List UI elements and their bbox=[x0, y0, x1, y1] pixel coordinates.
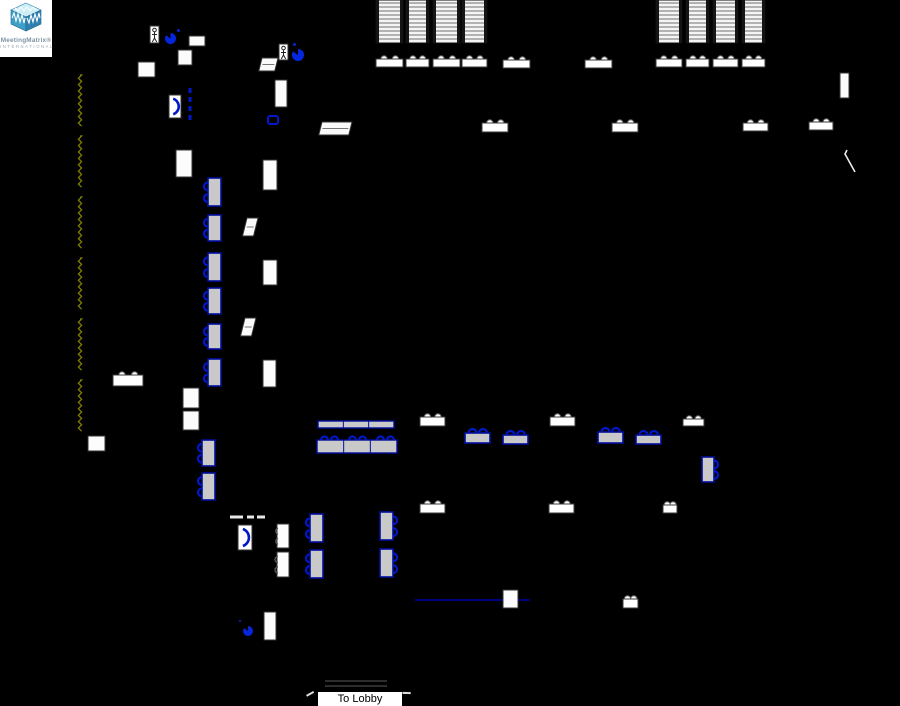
banquet-table[interactable] bbox=[380, 549, 397, 577]
banquet-table[interactable] bbox=[204, 253, 221, 281]
classroom-table[interactable] bbox=[420, 414, 445, 426]
classroom-table[interactable] bbox=[462, 56, 487, 67]
classroom-table[interactable] bbox=[433, 56, 460, 67]
classroom-table[interactable] bbox=[612, 120, 638, 132]
banquet-table[interactable] bbox=[306, 550, 323, 578]
furniture-block[interactable] bbox=[263, 160, 277, 190]
banquet-table[interactable] bbox=[465, 429, 490, 443]
classroom-table[interactable] bbox=[686, 56, 709, 67]
furniture-block[interactable] bbox=[264, 612, 276, 640]
theater-rows[interactable] bbox=[433, 0, 460, 43]
classroom-table[interactable] bbox=[503, 57, 530, 68]
meetingmatrix-logo: MeetingMatrix® INTERNATIONAL bbox=[0, 0, 52, 57]
pie-marker-icon[interactable] bbox=[243, 626, 253, 636]
floorplan-stage: MeetingMatrix® INTERNATIONAL To Lobby bbox=[0, 0, 900, 706]
furniture-block[interactable] bbox=[183, 388, 199, 408]
classroom-table[interactable] bbox=[656, 56, 682, 67]
equipment-marker[interactable] bbox=[268, 116, 278, 124]
furniture-block[interactable] bbox=[263, 260, 277, 285]
theater-rows[interactable] bbox=[462, 0, 487, 43]
theater-rows[interactable] bbox=[742, 0, 765, 43]
dot-marker bbox=[177, 29, 180, 32]
classroom-table[interactable] bbox=[585, 57, 612, 68]
dimension-tick bbox=[306, 692, 314, 696]
classroom-table[interactable] bbox=[420, 501, 445, 513]
classroom-table[interactable] bbox=[406, 56, 429, 67]
to-lobby-label: To Lobby bbox=[318, 692, 402, 706]
classroom-table[interactable] bbox=[549, 501, 574, 513]
classroom-table[interactable] bbox=[683, 416, 704, 426]
person-icon[interactable] bbox=[279, 44, 288, 60]
classroom-table[interactable] bbox=[742, 56, 765, 67]
banquet-table[interactable] bbox=[198, 473, 215, 500]
classroom-table[interactable] bbox=[713, 56, 738, 67]
theater-rows[interactable] bbox=[713, 0, 738, 43]
skewed-table[interactable] bbox=[243, 218, 258, 236]
head-table[interactable] bbox=[317, 440, 397, 453]
head-table[interactable] bbox=[318, 421, 394, 428]
furniture-block[interactable] bbox=[840, 73, 849, 98]
airwall-track bbox=[78, 75, 81, 431]
person-icon[interactable] bbox=[150, 26, 159, 43]
banquet-table[interactable] bbox=[380, 512, 397, 540]
door[interactable] bbox=[238, 525, 252, 550]
furniture-block[interactable] bbox=[275, 80, 287, 107]
theater-rows[interactable] bbox=[376, 0, 403, 43]
furniture-block[interactable] bbox=[176, 150, 192, 177]
classroom-table[interactable] bbox=[113, 372, 143, 386]
classroom-table[interactable] bbox=[623, 596, 638, 608]
door-swing bbox=[845, 150, 855, 172]
theater-rows[interactable] bbox=[406, 0, 429, 43]
floorplan-canvas bbox=[0, 0, 900, 706]
dimension-tick bbox=[402, 691, 410, 695]
banquet-table[interactable] bbox=[636, 431, 661, 444]
classroom-table[interactable] bbox=[376, 56, 403, 67]
table-with-chairs-white[interactable] bbox=[276, 524, 289, 548]
furniture-block[interactable] bbox=[183, 411, 199, 430]
furniture-block[interactable] bbox=[263, 360, 276, 387]
table-with-chairs-white[interactable] bbox=[275, 552, 289, 577]
dot-marker bbox=[293, 43, 296, 46]
furniture-block[interactable] bbox=[178, 50, 192, 65]
banquet-table[interactable] bbox=[598, 428, 623, 443]
skewed-table[interactable] bbox=[319, 122, 352, 135]
logo-name: MeetingMatrix® bbox=[0, 37, 52, 44]
theater-rows[interactable] bbox=[656, 0, 682, 43]
furniture-block[interactable] bbox=[138, 62, 155, 77]
classroom-table[interactable] bbox=[743, 120, 768, 131]
banquet-table[interactable] bbox=[204, 288, 221, 314]
classroom-table[interactable] bbox=[663, 502, 677, 513]
furniture-block[interactable] bbox=[503, 590, 518, 608]
classroom-table[interactable] bbox=[482, 120, 508, 132]
furniture-block[interactable] bbox=[88, 436, 105, 451]
banquet-table[interactable] bbox=[204, 178, 221, 206]
logo-cube-icon bbox=[8, 2, 44, 32]
skewed-table[interactable] bbox=[241, 318, 256, 336]
banquet-table[interactable] bbox=[306, 514, 323, 542]
classroom-table[interactable] bbox=[550, 414, 575, 426]
logo-subtitle: INTERNATIONAL bbox=[0, 44, 52, 50]
banquet-table[interactable] bbox=[198, 440, 215, 466]
dot-marker bbox=[239, 620, 241, 622]
theater-rows[interactable] bbox=[686, 0, 709, 43]
furniture-block[interactable] bbox=[189, 36, 205, 46]
classroom-table[interactable] bbox=[809, 119, 833, 130]
skewed-table[interactable] bbox=[259, 58, 278, 71]
banquet-table[interactable] bbox=[204, 359, 221, 386]
banquet-table[interactable] bbox=[204, 215, 221, 241]
banquet-table[interactable] bbox=[204, 324, 221, 349]
banquet-table[interactable] bbox=[702, 457, 718, 482]
banquet-table[interactable] bbox=[503, 431, 528, 444]
door[interactable] bbox=[169, 95, 181, 118]
pie-marker-icon[interactable] bbox=[165, 33, 176, 44]
pie-marker-icon[interactable] bbox=[292, 49, 304, 61]
